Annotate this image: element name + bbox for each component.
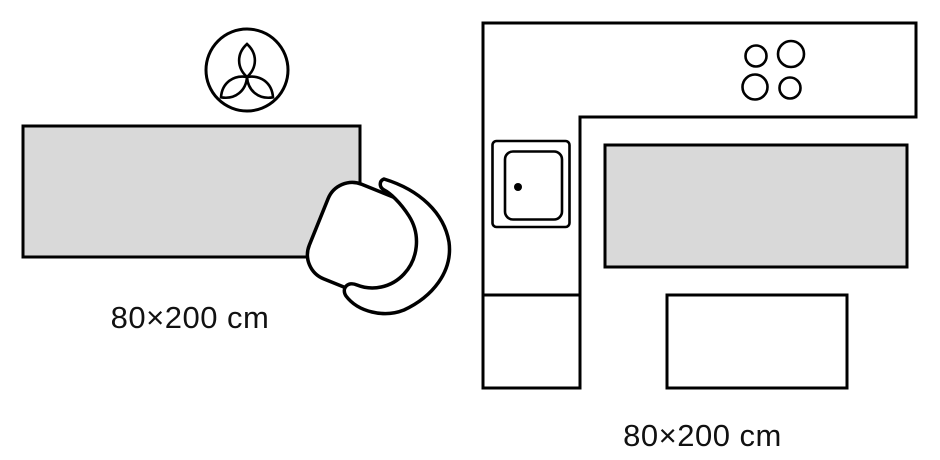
right-rug-swatch: [605, 145, 907, 267]
leaf: [216, 71, 252, 104]
living-room-diagram: [23, 29, 449, 314]
burner-large: [743, 75, 768, 100]
burner-small: [780, 78, 801, 99]
table-icon: [667, 295, 847, 388]
burner-small: [746, 46, 767, 67]
burner-large: [778, 41, 804, 67]
left-size-label: 80×200 cm: [60, 300, 320, 336]
rug-placement-diagrams: 80×200 cm 80×200 cm: [0, 0, 940, 460]
appliance-door: [505, 152, 562, 220]
kitchen-diagram: [483, 23, 916, 388]
appliance-icon: [493, 141, 570, 227]
plant-pot-circle: [206, 29, 288, 111]
plant-leaves: [216, 44, 278, 104]
leaf: [242, 71, 278, 104]
right-size-label: 80×200 cm: [580, 418, 825, 454]
plant-icon: [206, 29, 288, 111]
left-rug-swatch: [23, 126, 360, 257]
leaf: [239, 44, 255, 77]
appliance-knob: [514, 183, 522, 191]
diagram-canvas: [0, 0, 940, 460]
